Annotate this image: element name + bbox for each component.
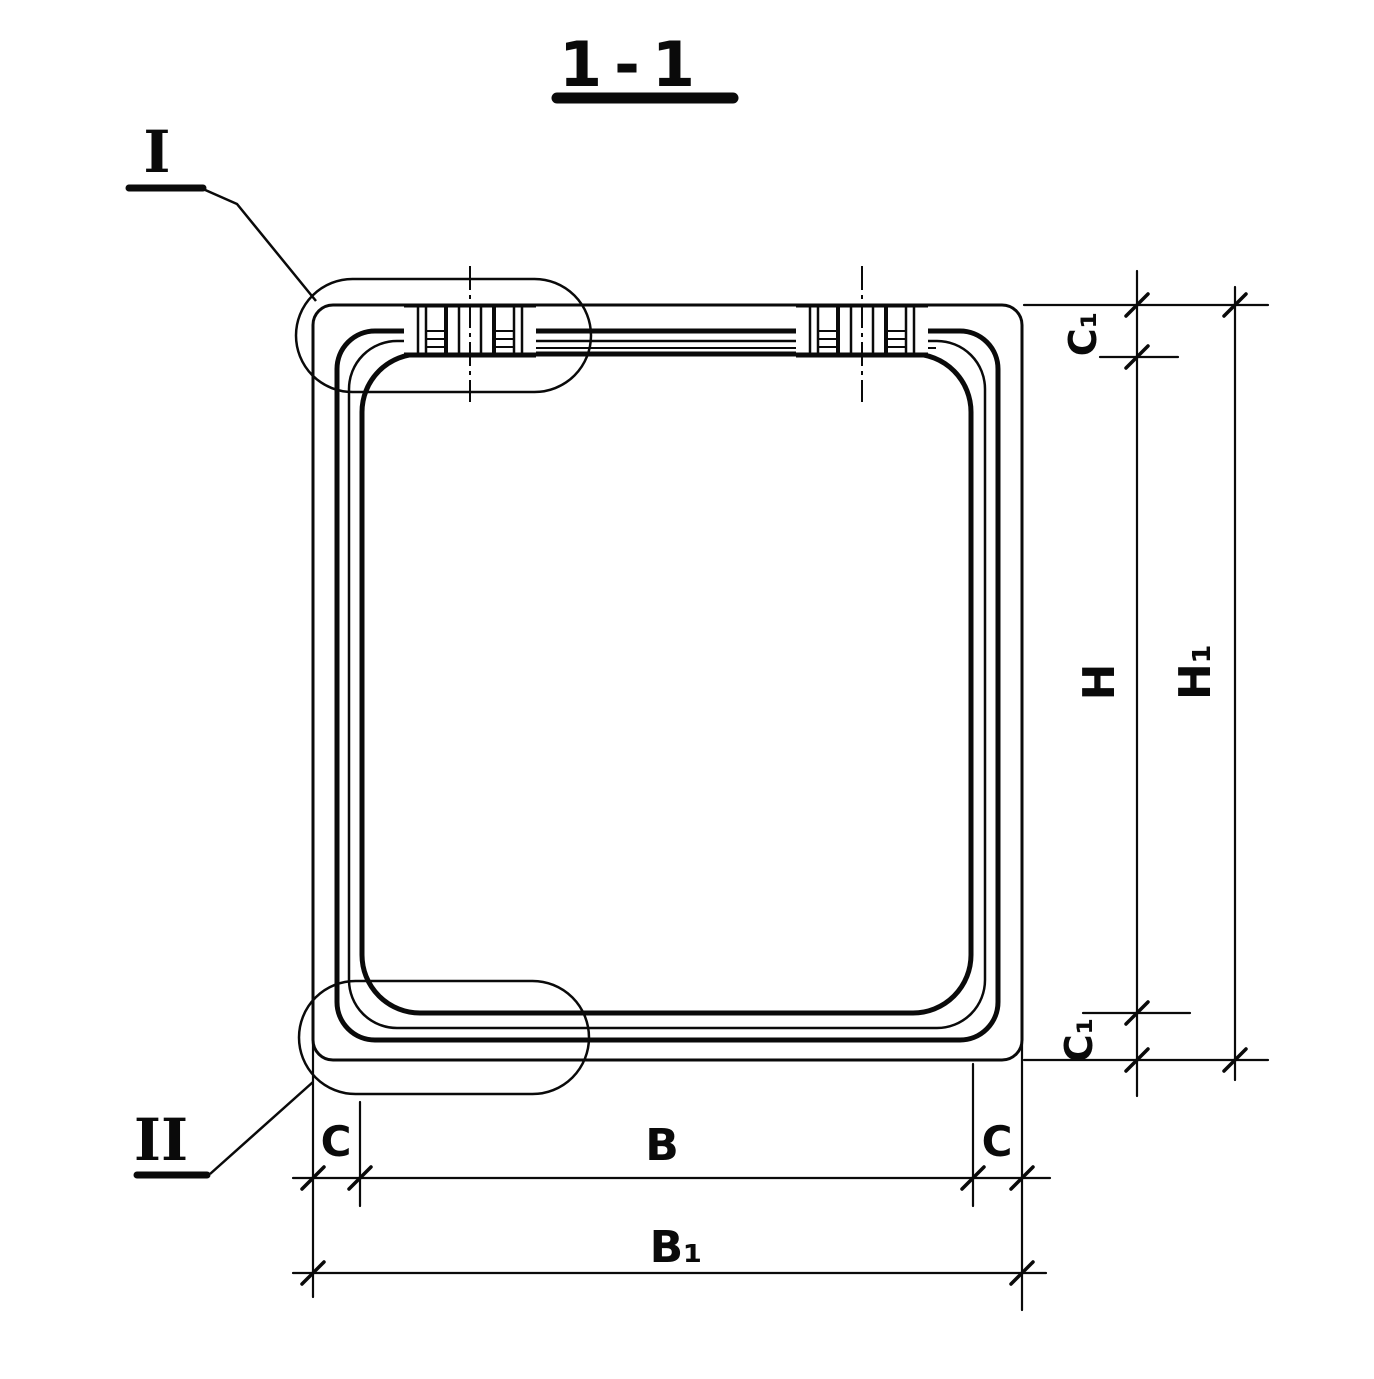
frame-joint-line-middle	[349, 341, 985, 1028]
dimension-right-side: C₁ H H₁ C₁	[1024, 271, 1268, 1096]
callout-detail-2-label: II	[134, 1106, 188, 1174]
dimension-label-b1: B₁	[650, 1222, 703, 1273]
dimension-label-c1-top: C₁	[1061, 312, 1105, 357]
frame-joint-line-outer	[337, 331, 998, 1040]
callout-detail-1: I	[129, 118, 316, 301]
dimension-bottom-side: C B C B₁	[293, 1042, 1050, 1310]
dimension-label-c1-bottom: C₁	[1057, 1018, 1101, 1063]
section-drawing: 1-1	[0, 0, 1374, 1379]
frame-section	[313, 305, 1022, 1060]
dimension-label-c-left: C	[321, 1117, 352, 1166]
callout-detail-2: II	[134, 1082, 313, 1175]
frame-inner-contour	[362, 354, 971, 1013]
callout-detail-1-label: I	[143, 118, 170, 186]
section-title-label: 1-1	[559, 28, 707, 101]
callout-detail-1-leader	[203, 189, 316, 301]
callout-detail-2-leader	[210, 1082, 313, 1174]
drawing-sheet: 1-1	[0, 0, 1374, 1379]
dimension-label-b: B	[645, 1120, 679, 1171]
joint-key-left	[404, 266, 536, 402]
joint-key-right	[796, 266, 928, 402]
section-title: 1-1	[557, 28, 733, 101]
dimension-label-h: H	[1074, 664, 1125, 701]
dimension-label-c-right: C	[982, 1117, 1013, 1166]
frame-outer-contour	[313, 305, 1022, 1060]
dimension-label-h1: H₁	[1170, 644, 1221, 700]
